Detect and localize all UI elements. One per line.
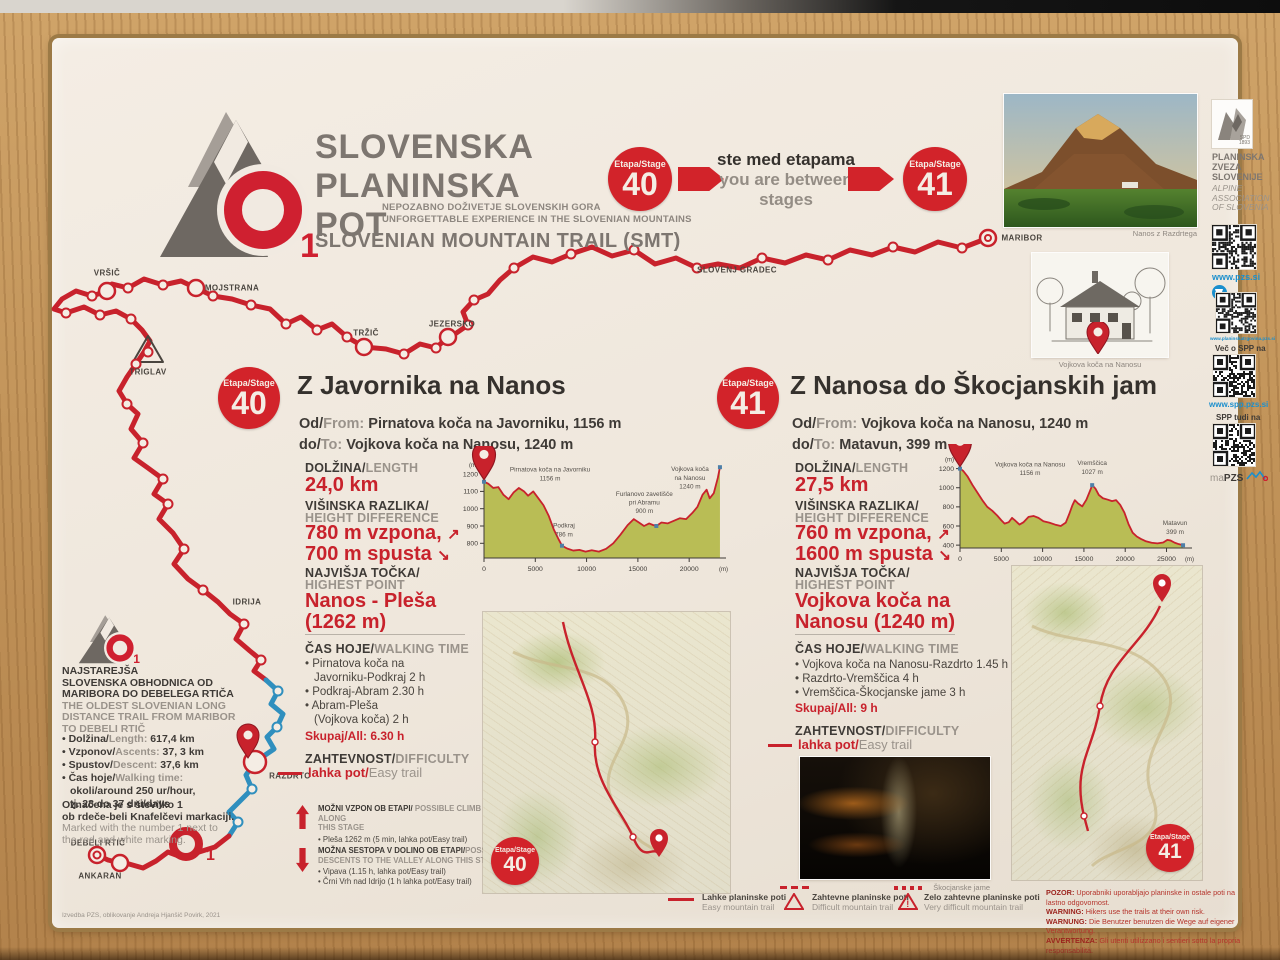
svg-text:10000: 10000 [577,566,596,573]
stage-40-climb-note: MOŽNI VZPON OB ETAPI/ POSSIBLE CLIMB ALO… [318,804,503,844]
shop-url: www.planinskatrgovina.pzs.si [1210,336,1275,341]
svg-text:600: 600 [943,523,955,530]
from-label-en: From: [816,416,857,432]
stage-40-highpoint-value2: (1262 m) [305,611,386,633]
svg-text:20000: 20000 [1116,556,1135,563]
stage-40-difficulty-label: ZAHTEVNOST/DIFFICULTY [305,752,469,766]
svg-text:pri Abramu: pri Abramu [629,500,660,507]
legend-dotted-line-icon [894,886,926,890]
stage-40-time-label: ČAS HOJE/WALKING TIME [305,642,469,656]
svg-text:1100: 1100 [463,489,478,496]
to-label-en: To: [814,437,835,453]
stage-40-length-value: 24,0 km [305,474,378,496]
stage-40-descent-item: • Črni Vrh nad Idrijo (1 h lahka pot/Eas… [318,877,508,887]
between-stages-en: you are between stages [700,170,872,210]
stage-41-highpoint-value1: Vojkova koča na [795,590,950,612]
legend-item-very-difficult: Zelo zahtevne planinske poti Very diffic… [924,892,1040,912]
stage-40-descent-value: 700 m spusta ↘ [305,543,450,567]
stage-40-header-badge: Etapa/Stage 40 [608,147,672,211]
stage-badge-number: 41 [917,169,953,199]
to-label-sl: do/ [792,437,814,453]
mapzs-ma: ma [1210,473,1224,484]
marking-sl-line: Označena je s številko 1 [62,800,234,812]
pzs-name-en: ALPINE ASSOCIATION OF SLOVENIA [1212,184,1269,213]
easy-trail-line-icon [768,744,792,747]
legend-en: Very difficult mountain trail [924,902,1040,912]
svg-text:1240 m: 1240 m [679,483,700,490]
stage-40-time-total: Skupaj/All: 6.30 h [305,729,404,743]
from-label-sl: Od/ [792,416,816,432]
stage-41-from: Od/From: Vojkova koča na Nanosu, 1240 m [792,416,1088,432]
stage-badge-number: 41 [730,388,766,418]
stage-41-time-label: ČAS HOJE/WALKING TIME [795,642,959,656]
board-title-en: SLOVENIAN MOUNTAIN TRAIL (SMT) [315,230,681,253]
stage-40-time-line: • Pirnatova koča na [305,658,404,670]
svg-text:Podkraj: Podkraj [553,523,575,530]
svg-text:399 m: 399 m [1166,529,1184,536]
svg-text:1000: 1000 [939,485,954,492]
svg-text:(m): (m) [945,458,954,464]
spp-also-label: SPP tudi na [1216,413,1260,422]
warning-line: WARNING: Hikers use the trails at their … [1046,907,1241,917]
pzs-name-line2: ZVEZA [1212,162,1265,172]
stage-41-time-line: • Razdrto-Vremščica 4 h [795,673,919,685]
from-value: Pirnatova koča na Javorniku, 1156 m [364,416,621,432]
to-label-sl: do/ [299,437,321,453]
legend-sl: Zelo zahtevne planinske poti [924,892,1040,902]
svg-text:1027 m: 1027 m [1082,469,1103,476]
spd-1893-mark: SPD1893 [1239,136,1250,146]
svg-text:900: 900 [467,523,479,530]
mapzs-logo: maPZS [1210,470,1268,484]
map-label-maribor: MARIBOR [1001,234,1042,243]
from-label-en: From: [323,416,364,432]
trail-marking-note: Označena je s številko 1 ob rdeče-beli K… [62,800,234,846]
stage-40-title: Z Javornika na Nanos [297,370,566,401]
stage-40-time-line: Javorniku-Podkraj 2 h [305,672,425,684]
svg-text:1200: 1200 [939,466,954,473]
more-spp-label: Več o SPP na [1215,344,1266,353]
stage-41-time-total: Skupaj/All: 9 h [795,701,878,715]
stage-41-difficulty-value: lahka pot/Easy trail [798,737,912,752]
to-label-en: To: [321,437,342,453]
svg-text:786 m: 786 m [555,531,573,538]
from-value: Vojkova koča na Nanosu, 1240 m [857,416,1088,432]
stage-40-time-line: • Podkraj-Abram 2.30 h [305,686,424,698]
stage-40-elevation-chart: 800900100011001200(m)0500010000150002000… [448,446,736,580]
svg-text:Vojkova koča: Vojkova koča [671,466,709,473]
stage-badge-number: 40 [622,169,658,199]
pzs-logo: SPD1893 [1212,100,1252,148]
legend-dashed-line-icon [780,886,810,889]
svg-text:25000: 25000 [1157,556,1176,563]
trail-stat-extra: okoli/around 250 ur/hour, [62,785,204,798]
legend-warning-triangle-icon: ! [898,893,918,910]
pzs-name-line3: SLOVENIJE [1212,172,1265,182]
trail-info-sl-line: NAJSTAREJŠA [62,666,235,678]
legend-item-easy: Lahke planinske poti Easy mountain trail [702,892,786,912]
stage-41-map-badge: Etapa/Stage 41 [1146,824,1194,872]
stage-41-difficulty-label: ZAHTEVNOST/DIFFICULTY [795,724,959,738]
trail-stat: • Dolžina/Length: 617,4 km [62,733,204,746]
legend-en: Easy mountain trail [702,902,786,912]
stage-badge-number: 41 [1158,842,1181,862]
pzs-name-en-line3: OF SLOVENIA [1212,203,1269,213]
svg-text:1: 1 [133,652,140,664]
warnings-block: POZOR: Uporabniki uporabljajo planinske … [1046,888,1241,955]
stage-41-length-value: 27,5 km [795,474,868,496]
svg-text:!: ! [906,899,909,909]
map-label-ankaran: ANKARAN [78,872,121,881]
svg-text:400: 400 [943,542,955,549]
trail-info-title: NAJSTAREJŠA SLOVENSKA OBHODNICA OD MARIB… [62,666,235,735]
map-label-slovenj-gradec: SLOVENJ GRADEC [697,266,777,275]
map-label-trzic: TRŽIČ [353,329,379,338]
svg-text:0: 0 [958,556,962,563]
legend-en: Difficult mountain trail [812,902,909,912]
stage-badge-number: 40 [503,855,526,875]
stage-40-topo-map: Etapa/Stage 40 [483,612,730,893]
trail-stat: • Vzponov/Ascents: 37, 3 km [62,746,204,759]
svg-text:900 m: 900 m [635,508,653,515]
stage-40-map-badge: Etapa/Stage 40 [491,837,539,885]
marking-en-line: the red and white marking. [62,835,234,847]
legend-item-difficult: Zahtevne planinske poti Difficult mounta… [812,892,909,912]
trail-info-en-line: DISTANCE TRAIL FROM MARIBOR [62,712,235,724]
svg-text:na Nanosu: na Nanosu [674,475,705,482]
pzs-name: PLANINSKA ZVEZA SLOVENIJE [1212,152,1265,182]
svg-text:(m): (m) [719,567,728,573]
trail-stat: • Čas hoje/Walking time: [62,772,204,785]
map-label-jezersko: JEZERSKO [429,320,475,329]
map-label-idrija: IDRIJA [233,598,262,607]
board-title-line1: SLOVENSKA [315,128,534,167]
svg-text:Pirnatova koča na Javorniku: Pirnatova koča na Javorniku [510,467,591,474]
stage-40-time-line: • Abram-Pleša [305,700,378,712]
svg-text:1156 m: 1156 m [1020,470,1041,477]
stage-40-descent-item: • Vipava (1.15 h, lahka pot/Easy trail) [318,867,508,877]
stage-41-title: Z Nanosa do Škocjanskih jam [790,370,1157,401]
hut-sketch-caption: Vojkova koča na Nanosu [1059,360,1142,369]
svg-text:5000: 5000 [994,556,1009,563]
svg-text:800: 800 [467,541,479,548]
wall-background [0,0,1280,13]
warning-line: WARNUNG: Die Benutzer benutzen die Wege … [1046,917,1241,936]
legend-triangle-icon [784,893,804,910]
qr-code-pzs [1212,225,1256,269]
stage-40-time-line: (Vojkova koča) 2 h [305,714,409,726]
svg-text:10000: 10000 [1033,556,1052,563]
svg-text:20000: 20000 [680,566,699,573]
stage-41-time-line: • Vremščica-Škocjanske jame 3 h [795,687,965,699]
warning-line: POZOR: Uporabniki uporabljajo planinske … [1046,888,1241,907]
stage-badge-number: 40 [231,388,267,418]
map-label-mojstrana: MOJSTRANA [205,284,259,293]
stage-41-length-label: DOLŽINA/LENGTH [795,461,908,475]
board-title: SLOVENSKA PLANINSKA POT [315,128,534,245]
svg-text:Vojkova koča na Nanosu: Vojkova koča na Nanosu [995,462,1066,469]
spp-url: www.spp.pzs.si [1209,400,1268,409]
svg-text:1156 m: 1156 m [540,475,561,482]
svg-text:5000: 5000 [528,566,543,573]
mapzs-mountain-icon [1246,470,1268,481]
svg-text:15000: 15000 [628,566,647,573]
legend-sl: Lahke planinske poti [702,892,786,902]
svg-text:15000: 15000 [1074,556,1093,563]
credit-line: Izvedba PZS, oblikovanje Andreja Hjanšič… [62,912,220,919]
stage-40-highpoint-value1: Nanos - Pleša [305,590,436,612]
stage-41-topo-map: Etapa/Stage 41 [1012,566,1202,880]
stage-40-from: Od/From: Pirnatova koča na Javorniku, 11… [299,416,621,432]
stage-41-elevation-chart: 40060080010001200(m)05000100001500020000… [924,444,1202,570]
frame-shadow [0,947,1280,960]
svg-text:Furlanovo zavetišče: Furlanovo zavetišče [616,491,673,498]
trail-info-sl-line: MARIBORA DO DEBELEGA RTIČA [62,689,235,701]
divider [795,634,955,635]
board-subtitle-en: UNFORGETTABLE EXPERIENCE IN THE SLOVENIA… [382,214,692,226]
cave-photo [800,757,990,879]
mapzs-pzs: PZS [1224,473,1243,484]
spp-logo: 1 [148,92,318,260]
qr-code-shop [1216,293,1256,333]
stage-41-badge: Etapa/Stage 41 [717,367,779,429]
map-label-vrsic: VRŠIČ [94,269,120,278]
stage-40-badge: Etapa/Stage 40 [218,367,280,429]
svg-text:1000: 1000 [463,506,478,513]
map-label-triglav: TRIGLAV [129,368,166,377]
stage-40-length-label: DOLŽINA/LENGTH [305,461,418,475]
pzs-name-line1: PLANINSKA [1212,152,1265,162]
between-stages-sl: ste med etapama [700,150,872,170]
stage-41-header-badge: Etapa/Stage 41 [903,147,967,211]
between-stages-text: ste med etapama you are between stages [700,150,872,210]
legend-easy-line-icon [668,898,694,901]
board-title-line2: PLANINSKA [315,167,534,206]
svg-text:800: 800 [943,504,955,511]
stage-41-time-line: • Vojkova koča na Nanosu-Razdrto 1.45 h [795,659,1008,671]
stage-40-difficulty-value: lahka pot/Easy trail [308,765,422,780]
cave-photo-caption: Škocjanske jame [933,883,990,892]
svg-text:0: 0 [482,566,486,573]
qr-code-spp [1213,355,1255,397]
spp-logo-small: 1 [74,608,142,664]
trail-stat: • Spustov/Descent: 37,6 km [62,759,204,772]
easy-trail-line-icon [278,772,302,775]
stage-40-climb-item: • Pleša 1262 m (5 min, lahka pot/Easy tr… [318,835,503,845]
location-pin-icon [1086,322,1110,354]
stage-40-descent-note: MOŽNA SESTOPA V DOLINO OB ETAPI/POSSIBLE… [318,846,508,886]
svg-text:(m): (m) [1185,557,1194,563]
stage-41-highpoint-value2: Nanosu (1240 m) [795,611,955,633]
legend-sl: Zahtevne planinske poti [812,892,909,902]
divider [305,634,465,635]
qr-code-mapzs [1213,424,1255,466]
nanos-photo-caption: Nanos z Razdrtega [1133,229,1197,238]
pzs-url: www.pzs.si [1212,272,1260,282]
svg-text:Matavun: Matavun [1163,520,1188,527]
marking-en-line: Marked with the number 1 next to [62,823,234,835]
svg-text:1200: 1200 [463,471,478,478]
nanos-photo [1004,94,1197,227]
svg-text:Vremščica: Vremščica [1077,460,1107,467]
from-label-sl: Od/ [299,416,323,432]
